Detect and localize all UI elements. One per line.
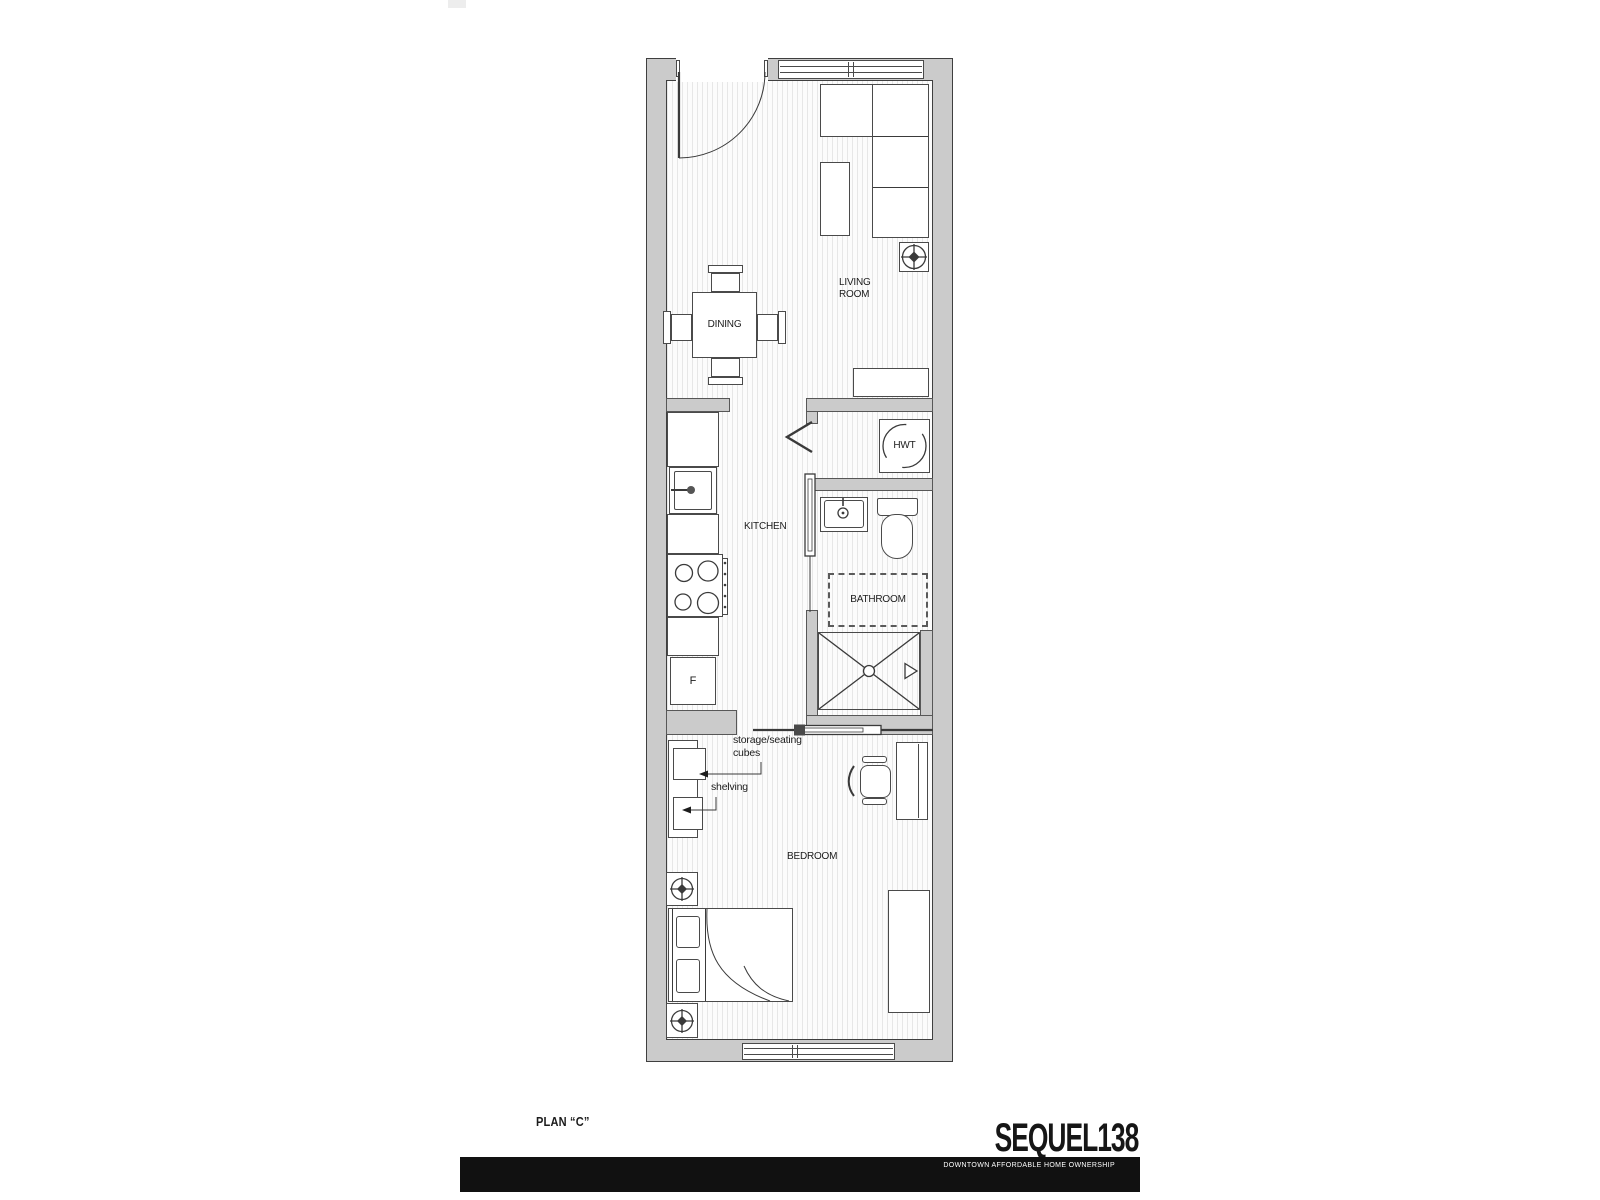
brand-tagline: DOWNTOWN AFFORDABLE HOME OWNERSHIP [943, 1162, 1115, 1169]
kitchen-label: KITCHEN [744, 521, 787, 533]
ceiling-light-icon [670, 1009, 694, 1033]
ceiling-light-icon [901, 244, 927, 270]
stove-burners [675, 561, 726, 614]
floor-plan-sheet: DINING F HWT BATHROOM [0, 0, 1600, 1200]
bathroom-faucet-icon [838, 498, 848, 518]
living-room-label: LIVING ROOM [839, 277, 871, 301]
hall-door-open [787, 422, 812, 452]
bathroom-pocket-door [805, 474, 815, 612]
bedroom-label: BEDROOM [787, 851, 837, 863]
shower-drain-cross [819, 633, 919, 709]
desk-chair-back [849, 766, 854, 796]
brand-logo: SEQUEL138 [995, 1116, 1120, 1161]
ceiling-light-icon [670, 877, 694, 901]
hwt-coil [883, 425, 926, 468]
storage-cubes-annotation: storage/seating cubes [733, 734, 802, 760]
brand-bar: DOWNTOWN AFFORDABLE HOME OWNERSHIP [460, 1157, 1140, 1192]
kitchen-faucet-icon [671, 486, 695, 494]
bed-blanket-fold [673, 909, 790, 1001]
shelving-annotation: shelving [711, 781, 748, 794]
sofa-cushion-lines [873, 137, 928, 188]
plan-detail-overlay [0, 0, 1600, 1200]
entry-door-swing [679, 72, 765, 158]
plan-title: PLAN “C” [536, 1114, 590, 1129]
